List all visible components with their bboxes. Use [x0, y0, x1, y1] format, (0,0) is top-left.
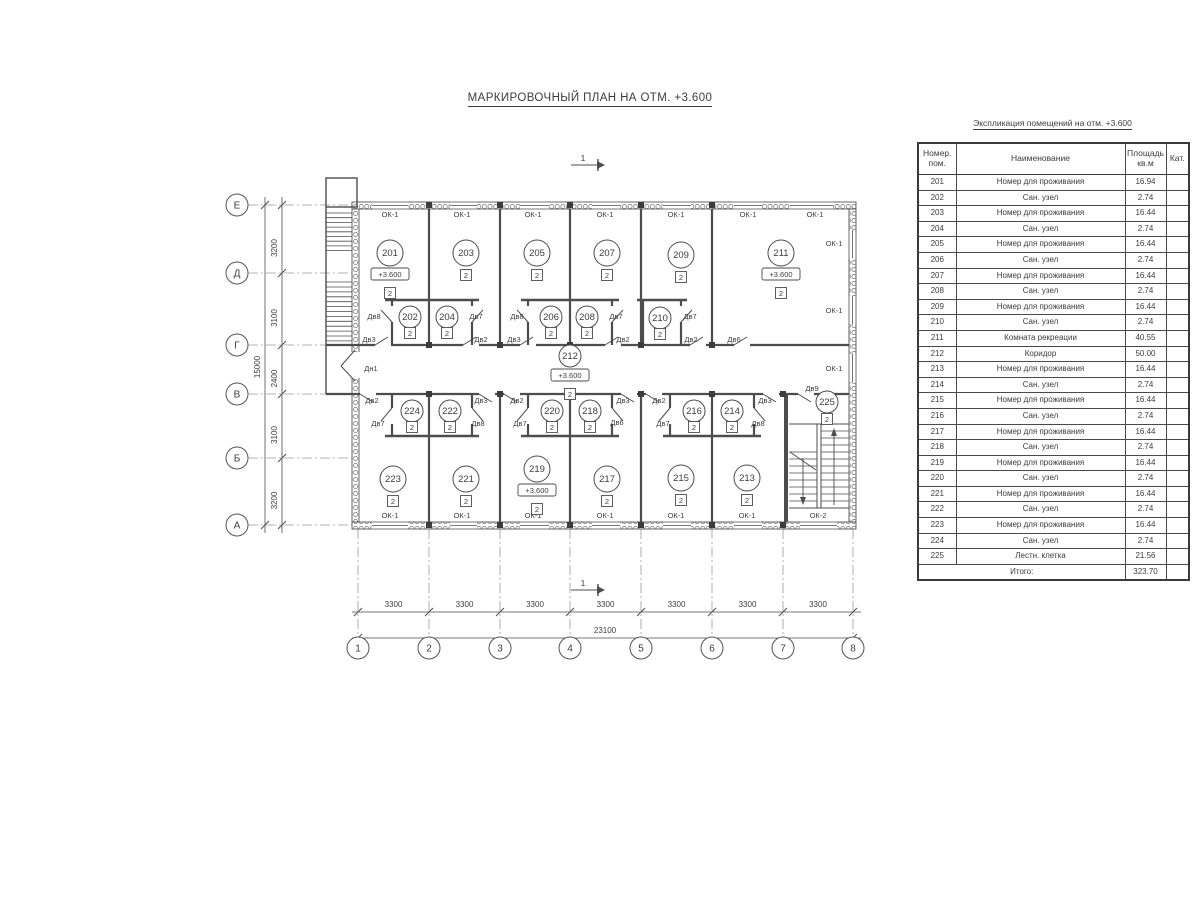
room-marker: 2052 — [524, 240, 550, 281]
column-marker — [497, 391, 503, 397]
section-mark-label: 1 — [581, 153, 586, 163]
room-number: 201 — [382, 248, 398, 259]
column-marker — [709, 202, 715, 208]
category-value: 2 — [730, 423, 734, 432]
column-marker — [638, 391, 644, 397]
door-label: Дв8 — [510, 312, 523, 321]
room-marker: 211+3.6002 — [762, 240, 800, 299]
room-number: 224 — [404, 406, 420, 417]
column-marker — [638, 522, 644, 528]
dimension-label: 3300 — [597, 600, 615, 609]
room-marker: 2232 — [380, 466, 406, 507]
room-number: 220 — [544, 406, 560, 417]
category-value: 2 — [410, 423, 414, 432]
axis-col-label: 3 — [497, 644, 503, 655]
room-number: 222 — [442, 406, 458, 417]
column-marker — [709, 342, 715, 348]
axis-row-label: А — [234, 521, 241, 532]
column-marker — [709, 522, 715, 528]
elevation-value: +3.600 — [769, 270, 792, 279]
window-label: ОК-1 — [597, 511, 614, 520]
room-number: 215 — [673, 473, 689, 484]
window-label: ОК-1 — [826, 306, 843, 315]
door-leaf — [798, 394, 811, 402]
floor-plan: 3200310024003100320015000330033003300330… — [0, 0, 1200, 900]
column-marker — [426, 391, 432, 397]
dimension-label: 3200 — [270, 491, 279, 509]
window-label: ОК-1 — [525, 210, 542, 219]
dimension-label: 3300 — [385, 600, 403, 609]
category-value: 2 — [568, 390, 572, 399]
room-number: 218 — [582, 406, 598, 417]
category-value: 2 — [445, 329, 449, 338]
door-label: Дв3 — [507, 335, 520, 344]
category-value: 2 — [679, 496, 683, 505]
elevation-value: +3.600 — [525, 486, 548, 495]
dimension-label: 3300 — [739, 600, 757, 609]
room-number: 210 — [652, 313, 668, 324]
door-label: Дв7 — [469, 312, 482, 321]
axis-col-label: 1 — [355, 644, 361, 655]
room-marker: 2032 — [453, 240, 479, 281]
category-value: 2 — [388, 289, 392, 298]
room-marker: 2172 — [594, 466, 620, 507]
room-number: 212 — [562, 351, 578, 362]
door-label: Дв7 — [656, 419, 669, 428]
axis-col-label: 8 — [850, 644, 856, 655]
door-label: Дв2 — [616, 335, 629, 344]
room-number: 207 — [599, 248, 615, 259]
room-marker: 2022 — [399, 306, 421, 339]
column-marker — [567, 522, 573, 528]
door-label: Дв3 — [362, 335, 375, 344]
room-number: 209 — [673, 250, 689, 261]
category-value: 2 — [679, 273, 683, 282]
category-value: 2 — [464, 271, 468, 280]
category-value: 2 — [448, 423, 452, 432]
axis-row-label: В — [234, 390, 241, 401]
column-marker — [567, 202, 573, 208]
column-marker — [426, 202, 432, 208]
window-label: ОК-1 — [382, 210, 399, 219]
room-marker: 2132 — [734, 465, 760, 506]
category-value: 2 — [692, 423, 696, 432]
axis-col-label: 2 — [426, 644, 432, 655]
elevation-value: +3.600 — [558, 371, 581, 380]
category-value: 2 — [408, 329, 412, 338]
door-label: Дв2 — [684, 335, 697, 344]
category-value: 2 — [549, 329, 553, 338]
column-marker — [426, 522, 432, 528]
window-label: ОК-1 — [668, 511, 685, 520]
window-label: ОК-1 — [454, 511, 471, 520]
door-label: Дв2 — [652, 396, 665, 405]
window-label: ОК-2 — [810, 511, 827, 520]
axis-row-label: Е — [234, 201, 241, 212]
dimension-label: 3300 — [526, 600, 544, 609]
section-mark-label: 1 — [581, 578, 586, 588]
category-value: 2 — [550, 423, 554, 432]
door-label: Дв6 — [610, 418, 623, 427]
door-label: Дв8 — [751, 419, 764, 428]
window-label: ОК-1 — [740, 210, 757, 219]
column-marker — [638, 202, 644, 208]
category-value: 2 — [605, 497, 609, 506]
room-number: 223 — [385, 474, 401, 485]
room-marker: 2082 — [576, 306, 598, 339]
axis-col-label: 5 — [638, 644, 644, 655]
column-marker — [426, 342, 432, 348]
axis-row-label: Г — [234, 341, 240, 352]
door-label: Дв9 — [805, 384, 818, 393]
room-marker: 201+3.6002 — [371, 240, 409, 299]
column-marker — [780, 522, 786, 528]
column-marker — [780, 391, 786, 397]
door-leaf — [381, 310, 392, 322]
door-label: Дв2 — [474, 335, 487, 344]
door-label: Дв3 — [616, 396, 629, 405]
room-marker: 2242 — [401, 400, 423, 433]
dimension-total-label: 15000 — [253, 355, 262, 378]
room-marker: 2182 — [579, 400, 601, 433]
door-label: Дв8 — [367, 312, 380, 321]
room-marker: 2072 — [594, 240, 620, 281]
category-value: 2 — [588, 423, 592, 432]
room-number: 219 — [529, 464, 545, 475]
category-value: 2 — [391, 497, 395, 506]
door-label: Дн1 — [364, 364, 377, 373]
category-value: 2 — [535, 505, 539, 514]
door-label: Дв2 — [510, 396, 523, 405]
category-value: 2 — [605, 271, 609, 280]
axis-col-label: 7 — [780, 644, 786, 655]
window-label: ОК-1 — [826, 239, 843, 248]
room-number: 208 — [579, 312, 595, 323]
door-label: Дв7 — [513, 419, 526, 428]
category-value: 2 — [658, 330, 662, 339]
dimension-label: 3100 — [270, 309, 279, 327]
dimension-label: 3200 — [270, 239, 279, 257]
dimension-label: 3300 — [809, 600, 827, 609]
room-number: 211 — [773, 248, 788, 259]
elevation-value: +3.600 — [378, 270, 401, 279]
room-number: 205 — [529, 248, 545, 259]
window-label: ОК-1 — [454, 210, 471, 219]
column-marker — [709, 391, 715, 397]
category-value: 2 — [535, 271, 539, 280]
door-label: Дв6 — [727, 335, 740, 344]
room-marker: 212+3.6002 — [551, 345, 589, 400]
column-marker — [497, 522, 503, 528]
room-number: 216 — [686, 406, 702, 417]
category-value: 2 — [825, 415, 829, 424]
dimension-total-label: 23100 — [594, 626, 617, 635]
room-number: 225 — [819, 397, 835, 408]
axis-row-label: Д — [234, 269, 241, 280]
door-label: Дв7 — [609, 312, 622, 321]
category-value: 2 — [745, 496, 749, 505]
door-label: Дв3 — [758, 396, 771, 405]
room-number: 206 — [543, 312, 559, 323]
column-marker — [638, 342, 644, 348]
dimension-label: 3300 — [668, 600, 686, 609]
room-marker: 2092 — [668, 242, 694, 283]
room-marker: 2062 — [540, 306, 562, 339]
plan-labels: ОК-1ОК-1ОК-1ОК-1ОК-1ОК-1ОК-1ОК-1ОК-1ОК-1… — [362, 210, 842, 520]
door-opening — [351, 352, 359, 378]
window-label: ОК-1 — [597, 210, 614, 219]
stair-up-arrow-icon — [831, 428, 837, 436]
room-number: 204 — [439, 312, 455, 323]
category-value: 2 — [585, 329, 589, 338]
room-marker: 2102 — [649, 307, 671, 340]
door-label: Дв3 — [474, 396, 487, 405]
window-label: ОК-1 — [668, 210, 685, 219]
room-marker: 2202 — [541, 400, 563, 433]
room-number: 202 — [402, 312, 418, 323]
door-leaf — [375, 337, 388, 345]
category-value: 2 — [779, 289, 783, 298]
door-label: Дв7 — [371, 419, 384, 428]
column-marker — [497, 202, 503, 208]
room-marker: 2042 — [436, 306, 458, 339]
column-marker — [497, 342, 503, 348]
category-value: 2 — [464, 497, 468, 506]
dimension-label: 3100 — [270, 426, 279, 444]
room-number: 221 — [458, 474, 474, 485]
room-marker: 2222 — [439, 400, 461, 433]
room-number: 217 — [599, 474, 615, 485]
window-label: ОК-1 — [382, 511, 399, 520]
window-label: ОК-1 — [807, 210, 824, 219]
dimension-label: 3300 — [456, 600, 474, 609]
axis-col-label: 4 — [567, 644, 573, 655]
stairs — [326, 178, 849, 508]
door-label: Дв2 — [365, 396, 378, 405]
door-label: Дв8 — [471, 419, 484, 428]
window-label: ОК-1 — [826, 364, 843, 373]
axis-col-label: 6 — [709, 644, 715, 655]
room-marker: 2142 — [721, 400, 743, 433]
room-number: 213 — [739, 473, 755, 484]
axis-row-label: Б — [234, 454, 241, 465]
room-marker: 2252 — [816, 391, 838, 425]
room-marker: 2152 — [668, 465, 694, 506]
window-label: ОК-1 — [739, 511, 756, 520]
drawing-sheet: МАРКИРОВОЧНЫЙ ПЛАН НА ОТМ. +3.600 Экспли… — [0, 0, 1200, 900]
room-marker: 2162 — [683, 400, 705, 433]
door-label: Дв7 — [683, 312, 696, 321]
door-leaf — [520, 337, 533, 345]
room-marker: 219+3.6002 — [518, 456, 556, 515]
dimension-label: 2400 — [270, 369, 279, 387]
room-number: 203 — [458, 248, 474, 259]
room-number: 214 — [724, 406, 740, 417]
room-marker: 2212 — [453, 466, 479, 507]
